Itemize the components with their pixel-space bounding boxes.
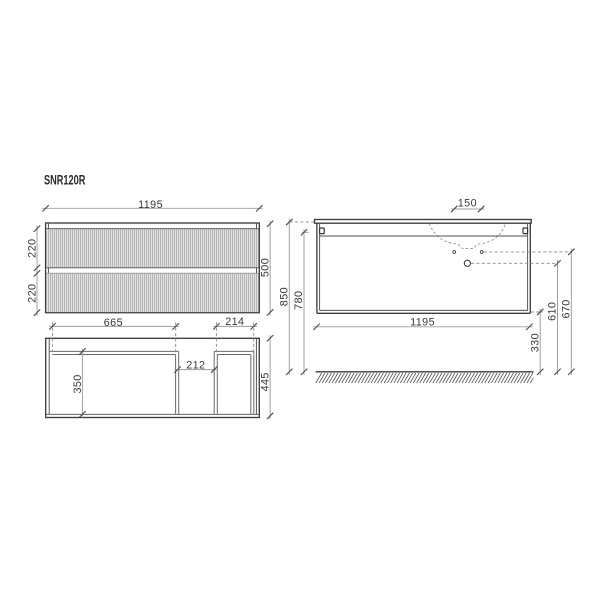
svg-text:214: 214 bbox=[225, 316, 244, 328]
svg-text:330: 330 bbox=[529, 333, 541, 352]
svg-text:1195: 1195 bbox=[138, 199, 163, 211]
svg-text:665: 665 bbox=[104, 317, 123, 329]
svg-text:1195: 1195 bbox=[410, 316, 435, 328]
svg-text:670: 670 bbox=[561, 299, 573, 318]
svg-text:150: 150 bbox=[458, 198, 477, 210]
svg-text:220: 220 bbox=[26, 284, 38, 303]
svg-text:220: 220 bbox=[26, 239, 38, 258]
svg-text:445: 445 bbox=[259, 372, 271, 391]
svg-text:780: 780 bbox=[293, 291, 305, 310]
svg-text:610: 610 bbox=[547, 302, 559, 321]
svg-text:850: 850 bbox=[279, 287, 291, 306]
svg-text:212: 212 bbox=[186, 359, 205, 371]
svg-text:500: 500 bbox=[259, 258, 271, 277]
svg-text:350: 350 bbox=[72, 374, 84, 393]
svg-text:SNR120R: SNR120R bbox=[44, 172, 86, 187]
